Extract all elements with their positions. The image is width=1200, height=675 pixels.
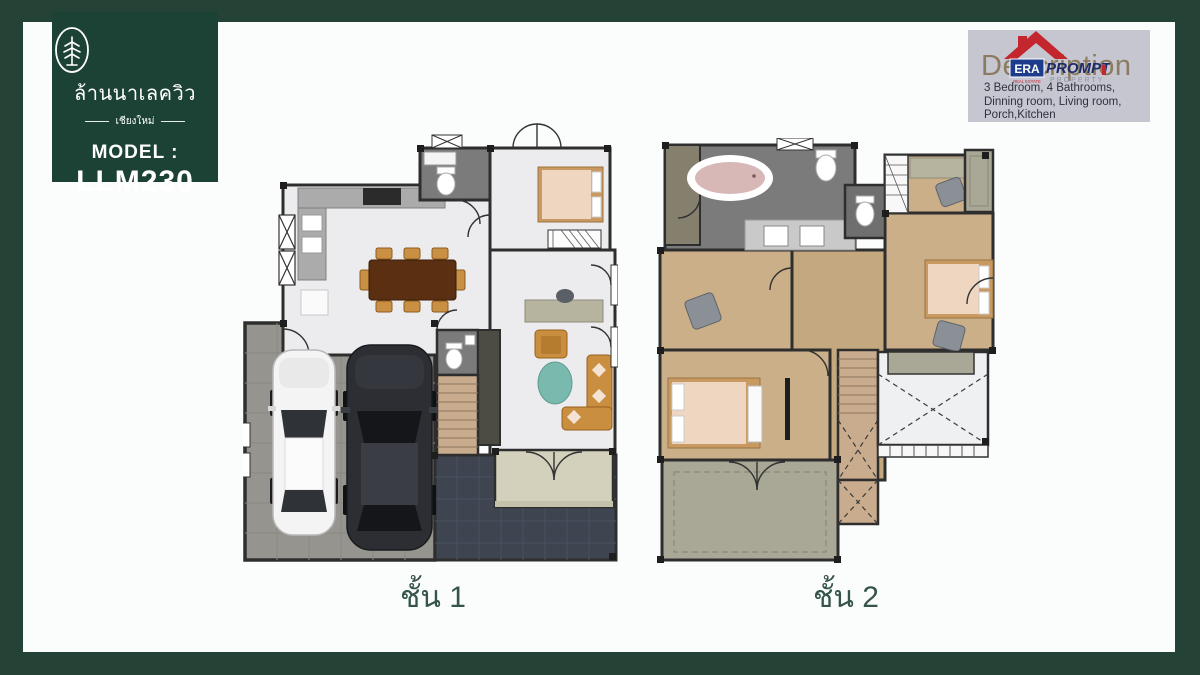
divider-line <box>85 121 109 122</box>
pillow <box>979 266 989 288</box>
svg-text:PROMPT: PROMPT <box>1046 60 1110 77</box>
toilet <box>437 173 455 195</box>
content-card: ล้านนาเลควิว เชียงใหม่ MODEL : LLM230 De… <box>23 22 1175 652</box>
vanity-sink <box>800 226 824 246</box>
description-line: 3 Bedroom, 4 Bathrooms, <box>984 82 1121 96</box>
stove <box>363 188 401 205</box>
bedroom-1 <box>468 124 610 250</box>
description-line: Dinning room, Living room, <box>984 96 1121 110</box>
walk-in-closet <box>665 145 700 245</box>
floor-2-plan <box>652 138 997 568</box>
toilet <box>446 349 462 369</box>
void-open-space <box>878 352 988 457</box>
living-room <box>490 250 618 455</box>
project-location: เชียงใหม่ <box>115 114 154 129</box>
pillow <box>672 416 684 442</box>
description-line: Porch,Kitchen <box>984 109 1121 123</box>
garage-side-window <box>243 453 250 477</box>
floor-1-plan <box>243 115 618 565</box>
planter-box <box>888 352 974 374</box>
pillow <box>672 384 684 410</box>
divider-line <box>161 121 185 122</box>
kitchen-sink <box>302 215 322 231</box>
bed-bedroom-3 <box>925 260 993 318</box>
bed-bench <box>748 386 762 442</box>
balcony <box>662 460 838 560</box>
floor-2-label: ชั้น 2 <box>781 574 911 621</box>
hand-sink <box>465 335 475 345</box>
railing <box>878 445 988 457</box>
pillow <box>979 292 989 314</box>
vase <box>556 289 574 303</box>
svg-text:ERA: ERA <box>1014 62 1040 76</box>
tv-panel <box>785 378 790 440</box>
presentation-slide: ล้านนาเลควิว เชียงใหม่ MODEL : LLM230 De… <box>0 0 1200 675</box>
vanity-sink <box>764 226 788 246</box>
toilet-3 <box>845 185 885 238</box>
linen-closet <box>885 155 908 213</box>
pillow <box>592 172 601 192</box>
staircase <box>838 350 878 480</box>
toilet <box>856 202 874 226</box>
black-car <box>341 345 438 550</box>
garage-side-window <box>243 423 250 447</box>
tv-console <box>525 300 603 322</box>
master-bathroom <box>665 138 855 250</box>
staircase <box>437 375 478 455</box>
project-badge: ล้านนาเลควิว เชียงใหม่ MODEL : LLM230 <box>52 12 218 182</box>
roof-shape <box>1004 31 1068 59</box>
description-box: Description ERA REAL ESTATE PROMPT PROPE… <box>968 30 1150 122</box>
toilet <box>816 155 836 181</box>
model-code: LLM230 <box>52 165 218 199</box>
rug <box>538 362 572 404</box>
master-bed <box>668 378 762 448</box>
pine-tree-icon <box>52 25 218 75</box>
stair-landing <box>838 480 878 524</box>
model-label: MODEL : <box>52 142 218 164</box>
floor-1-label: ชั้น 1 <box>368 574 498 621</box>
porch <box>495 450 613 507</box>
white-car <box>268 350 340 535</box>
bathroom-sink <box>424 152 456 165</box>
era-prompt-property-logo: ERA REAL ESTATE PROMPT PROPERTY <box>998 31 1110 85</box>
kitchen-island <box>301 290 328 315</box>
project-name: ล้านนาเลควิว <box>52 77 218 109</box>
upper-balcony <box>965 150 993 212</box>
bedroom-2 <box>660 250 792 350</box>
wardrobe <box>548 230 601 248</box>
kitchen-sink <box>302 237 322 253</box>
under-stair-closet <box>478 330 500 445</box>
pillow <box>592 197 601 217</box>
